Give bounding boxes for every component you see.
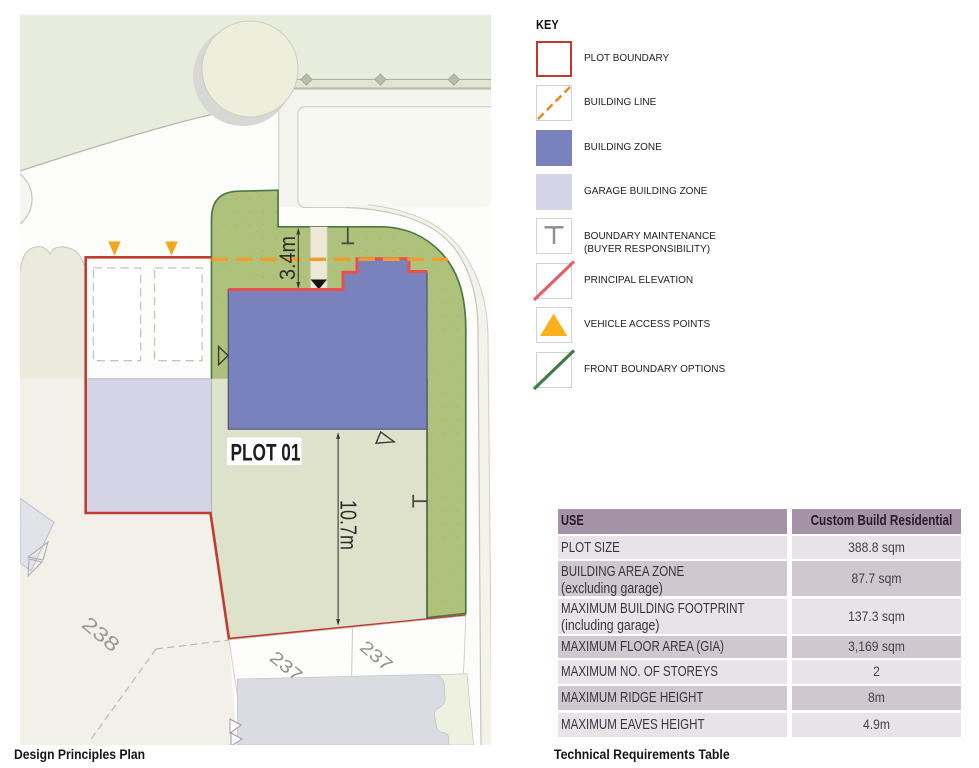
svg-text:10.7m: 10.7m (336, 500, 362, 550)
svg-text:PLOT 01: PLOT 01 (231, 440, 301, 467)
svg-text:3.4m: 3.4m (275, 236, 300, 280)
